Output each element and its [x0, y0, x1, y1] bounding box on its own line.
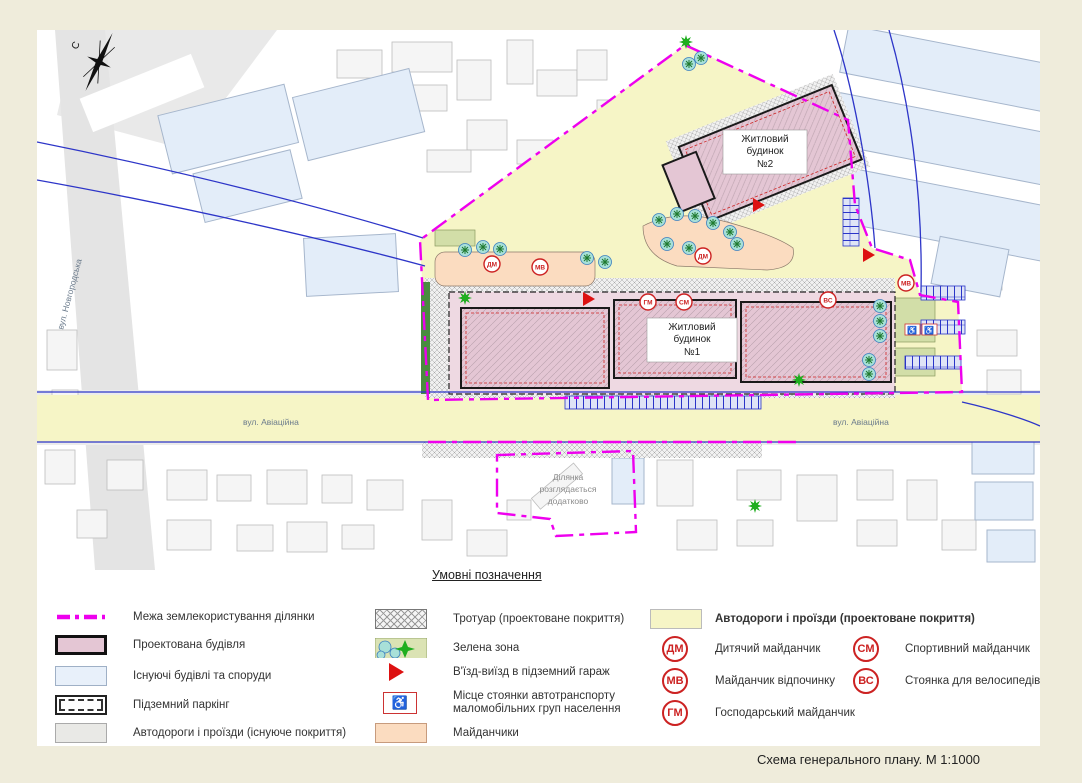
legend-item-roads-existing: Автодороги і проїзди (існуюче покриття)	[55, 721, 346, 745]
svg-text:розглядається: розглядається	[540, 484, 597, 494]
wheelchair-icon: ♿	[907, 325, 917, 335]
street-label-aviatsiina-right: вул. Авіаційна	[833, 417, 889, 427]
legend-label: Майданчики	[453, 727, 519, 739]
legend-item-sidewalk: Тротуар (проектоване покриття)	[375, 607, 624, 631]
badge-vs-circle: ВС	[853, 668, 879, 694]
legend-label: Зелена зона	[453, 642, 519, 654]
svg-text:Житловий: Житловий	[741, 134, 788, 145]
legend-label: Господарський майданчик	[715, 707, 855, 719]
badge-sm-circle: СМ	[853, 636, 879, 662]
legend-item-disabled-parking: ♿ Місце стоянки автотранспорту маломобіл…	[375, 691, 621, 715]
badge-dm: ДМ	[487, 262, 497, 269]
legend-item-projected-building: Проектована будівля	[55, 633, 245, 657]
legend-label: Проектована будівля	[133, 639, 245, 651]
green-zone-swatch	[375, 638, 427, 658]
svg-text:№1: №1	[684, 347, 701, 358]
boundary-line-swatch	[55, 607, 107, 627]
wheelchair-icon: ♿	[392, 695, 408, 711]
site-plan-map[interactable]: ♿ ♿ ДМ МВ ДМ ГМ СМ ВС МВ Житловий	[37, 30, 1040, 570]
legend-label: Існуючі будівлі та споруди	[133, 670, 271, 682]
badge-mv-circle: МВ	[662, 668, 688, 694]
legend-item-garage-entrance: В'їзд-виїзд в підземний гараж	[375, 660, 610, 684]
svg-text:будинок: будинок	[673, 333, 711, 345]
badge-dm-circle: ДМ	[662, 636, 688, 662]
legend-label: Автодороги і проїзди (існуюче покриття)	[133, 727, 346, 739]
playgrounds-swatch	[375, 723, 427, 743]
svg-text:№2: №2	[757, 159, 774, 170]
badge-gm-circle: ГМ	[662, 700, 688, 726]
sidewalk-swatch	[375, 609, 427, 629]
extra-plot-label: Ділянка розглядається додатково	[540, 472, 597, 506]
badge-vs: ВС	[823, 298, 832, 305]
badge-mv: МВ	[901, 281, 911, 288]
garage-entrance-swatch	[389, 663, 404, 681]
legend-item-green-zone: Зелена зона	[375, 636, 519, 660]
legend-heading: Умовні позначення	[432, 568, 542, 582]
badge-sm: СМ	[679, 300, 689, 307]
legend-label: Стоянка для велосипедів	[905, 675, 1040, 687]
legend-label: Майданчик відпочинку	[715, 675, 835, 687]
legend-label: Дитячий майданчик	[715, 643, 820, 655]
svg-text:будинок: будинок	[746, 145, 784, 157]
legend-item-existing-buildings: Існуючі будівлі та споруди	[55, 664, 271, 688]
projected-roads-swatch	[650, 609, 702, 629]
badge-mv: МВ	[535, 265, 545, 272]
legend-badge-vs: ВС Стоянка для велосипедів	[853, 669, 1040, 693]
plan-sheet: ♿ ♿ ДМ МВ ДМ ГМ СМ ВС МВ Житловий	[37, 30, 1040, 746]
canvas: ♿ ♿ ДМ МВ ДМ ГМ СМ ВС МВ Житловий	[0, 0, 1082, 783]
legend-badge-mv: МВ Майданчик відпочинку	[662, 669, 835, 693]
legend-label: Автодороги і проїзди (проектоване покрит…	[715, 613, 975, 625]
existing-roads-swatch	[55, 723, 107, 743]
badge-gm: ГМ	[643, 300, 652, 307]
existing-buildings-swatch	[55, 666, 107, 686]
building-2-label: Житловий будинок №2	[723, 130, 807, 174]
legend-badge-dm: ДМ Дитячий майданчик	[662, 637, 820, 661]
svg-text:Житловий: Житловий	[668, 322, 715, 333]
legend-item-roads-projected: Автодороги і проїзди (проектоване покрит…	[650, 607, 975, 631]
building-1-label: Житловий будинок №1	[647, 318, 737, 362]
projected-building-swatch	[55, 635, 107, 655]
street-label-aviatsiina-left: вул. Авіаційна	[243, 417, 299, 427]
legend-label: Спортивний майданчик	[905, 643, 1030, 655]
underground-parking-swatch	[55, 695, 107, 715]
legend-item-playgrounds: Майданчики	[375, 721, 519, 745]
legend-badge-gm: ГМ Господарський майданчик	[662, 701, 855, 725]
drawing-title: Схема генерального плану. М 1:1000	[757, 752, 980, 767]
legend-label: В'їзд-виїзд в підземний гараж	[453, 666, 610, 678]
legend-label: Місце стоянки автотранспорту маломобільн…	[453, 690, 621, 716]
legend-label: Межа землекористування ділянки	[133, 611, 315, 623]
badge-dm: ДМ	[698, 254, 708, 261]
legend-label: Підземний паркінг	[133, 699, 230, 711]
svg-text:додатково: додатково	[548, 496, 589, 506]
legend-label: Тротуар (проектоване покриття)	[453, 613, 624, 625]
legend-badge-sm: СМ Спортивний майданчик	[853, 637, 1030, 661]
disabled-parking-swatch: ♿	[383, 692, 417, 714]
svg-text:Ділянка: Ділянка	[553, 472, 584, 482]
legend-item-boundary: Межа землекористування ділянки	[55, 605, 315, 629]
wheelchair-icon: ♿	[924, 325, 934, 335]
legend-item-underground-parking: Підземний паркінг	[55, 693, 230, 717]
